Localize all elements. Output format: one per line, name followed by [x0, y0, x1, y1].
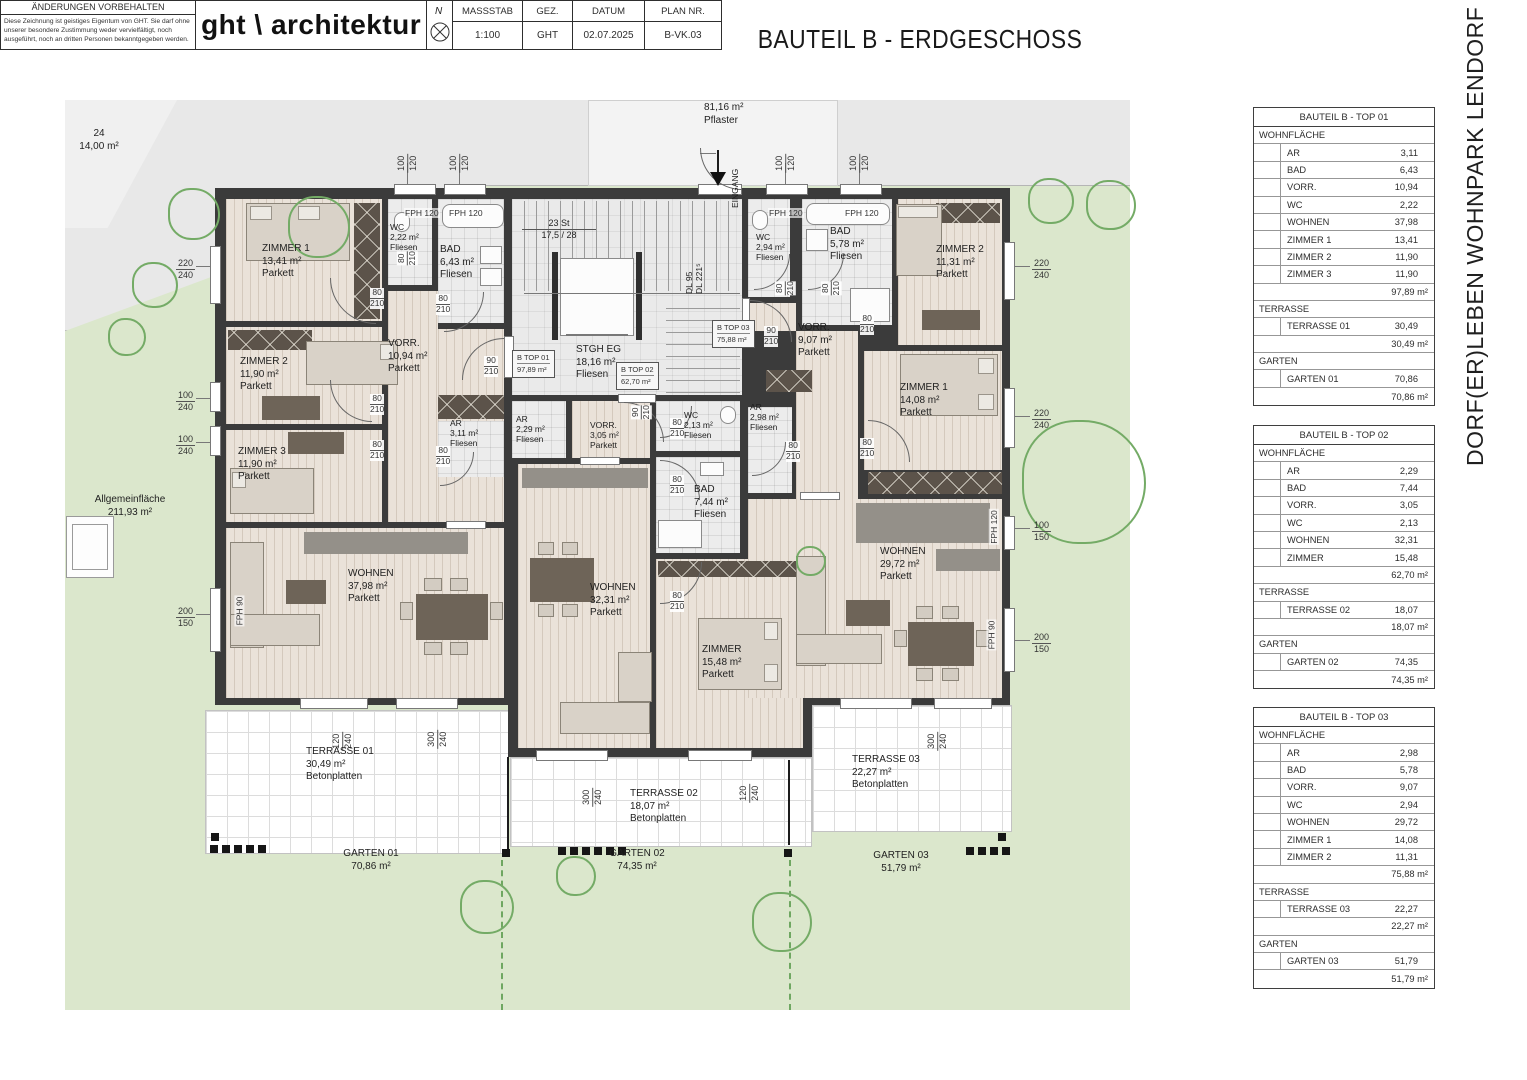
table-row-item: BAD7,44 — [1254, 480, 1434, 497]
table-row-item: VORR.10,94 — [1254, 179, 1434, 196]
site-structure-inner — [72, 524, 108, 570]
outdoor-label-terrasse02: TERRASSE 0218,07 m²Betonplatten — [630, 788, 698, 826]
disclaimer-header: ÄNDERUNGEN VORBEHALTEN — [1, 1, 195, 15]
tree-icon — [460, 880, 514, 934]
door-size-label: 80210 — [786, 441, 800, 462]
room-floor: Fliesen — [390, 242, 419, 252]
door-dl-label: DL 95 DL 221⁵ — [684, 224, 704, 294]
room-floor: Parkett — [900, 407, 948, 420]
fence-post — [1002, 847, 1010, 855]
room-floor: Fliesen — [516, 434, 545, 444]
room-label-t02_ar: AR2,29 m²Fliesen — [516, 414, 545, 445]
north-letter: N — [435, 6, 443, 17]
furniture — [562, 604, 578, 617]
room-area: 2,98 m² — [750, 412, 779, 422]
tree-icon — [132, 262, 178, 308]
fence-post — [990, 847, 998, 855]
room-label-t03_wc: WC2,94 m²Fliesen — [756, 232, 785, 263]
table-row-total: 51,79 m² — [1254, 970, 1434, 987]
table-row-total: 18,07 m² — [1254, 619, 1434, 636]
dimension-label: 220240 — [1032, 258, 1051, 281]
unit-tag-top03: B TOP 03 75,88 m² — [712, 320, 755, 348]
room-name: BAD — [440, 244, 474, 257]
areas-table-top01: BAUTEIL B - TOP 01 WOHNFLÄCHEAR3,11BAD6,… — [1253, 107, 1435, 406]
door-size-label: 80210 — [821, 281, 842, 295]
room-floor: Parkett — [590, 607, 636, 620]
room-floor: Parkett — [238, 471, 286, 484]
table-row-item: TERRASSE 0130,49 — [1254, 318, 1434, 335]
table-title: BAUTEIL B - TOP 02 — [1254, 426, 1434, 445]
dimension-label: 300240 — [426, 730, 449, 749]
room-area: 2,13 m² — [684, 420, 713, 430]
furniture — [636, 252, 642, 340]
window-type-label: FPH 120 — [404, 208, 440, 218]
unit-tag-top01: B TOP 01 97,89 m² — [512, 350, 555, 378]
furniture — [720, 406, 736, 424]
title-block-field-plan-nr-: PLAN NR.B-VK.03 — [645, 1, 721, 49]
room-area: 3,11 m² — [450, 428, 478, 438]
room-area: 14,08 m² — [900, 395, 948, 408]
title-block-field-datum: DATUM02.07.2025 — [573, 1, 645, 49]
room-floor: Fliesen — [750, 422, 779, 432]
room-area: 7,44 m² — [694, 497, 728, 510]
table-row-total: 30,49 m² — [1254, 336, 1434, 353]
table-row-section: WOHNFLÄCHE — [1254, 445, 1434, 462]
table-title: BAUTEIL B - TOP 03 — [1254, 708, 1434, 727]
room-floor: Fliesen — [576, 369, 621, 382]
door-size-label: 80210 — [436, 446, 450, 467]
table-row-total: 70,86 m² — [1254, 388, 1434, 405]
room-name: WC — [756, 232, 785, 242]
outdoor-label-garten01: GARTEN 0170,86 m² — [326, 848, 416, 873]
furniture — [250, 206, 272, 220]
room-floor: Parkett — [240, 381, 288, 394]
room-floor: Parkett — [590, 440, 619, 450]
dimension-label: 100150 — [1032, 520, 1051, 543]
window — [840, 698, 912, 709]
room-floor: Parkett — [880, 571, 926, 584]
dimension-label: 220240 — [1032, 408, 1051, 431]
door-size-label: 80210 — [436, 294, 450, 315]
outdoor-area: 30,49 m² — [306, 759, 374, 772]
furniture — [560, 702, 650, 734]
room-floor: Parkett — [348, 593, 394, 606]
table-row-section: TERRASSE — [1254, 584, 1434, 601]
furniture — [942, 606, 959, 619]
furniture — [752, 210, 768, 230]
tree-icon — [108, 318, 146, 356]
fence-post — [966, 847, 974, 855]
outdoor-area: 74,35 m² — [592, 861, 682, 874]
room-floor: Parkett — [702, 669, 741, 682]
room-label-t02_wc: WC2,13 m²Fliesen — [684, 410, 713, 441]
table-row-item: ZIMMER 211,90 — [1254, 249, 1434, 266]
window — [210, 382, 221, 412]
furniture — [764, 622, 778, 640]
table-row-total: 74,35 m² — [1254, 671, 1434, 688]
door-size-label: 90210 — [484, 356, 498, 377]
title-block-field-gez-: GEZ.GHT — [523, 1, 573, 49]
room-label-t01_zimmer2: ZIMMER 211,90 m²Parkett — [240, 356, 288, 394]
furniture — [894, 630, 907, 647]
fence-post — [998, 833, 1006, 841]
table-row-item: WOHNEN37,98 — [1254, 214, 1434, 231]
table-row-section: WOHNFLÄCHE — [1254, 727, 1434, 744]
room-name: AR — [450, 418, 478, 428]
table-row-item: WOHNEN32,31 — [1254, 532, 1434, 549]
table-row-section: WOHNFLÄCHE — [1254, 127, 1434, 144]
table-row-item: BAD5,78 — [1254, 762, 1434, 779]
entrance-arrow-icon — [710, 172, 726, 186]
table-row-item: ZIMMER 114,08 — [1254, 831, 1434, 848]
furniture — [416, 594, 488, 640]
door-size-label: 80210 — [860, 438, 874, 459]
areas-table-top03: BAUTEIL B - TOP 03 WOHNFLÄCHEAR2,98BAD5,… — [1253, 707, 1435, 989]
room-label-t02_bad: BAD7,44 m²Fliesen — [694, 484, 728, 522]
room-name: ZIMMER — [702, 644, 741, 657]
unit-tag-top02: B TOP 02 62,70 m² — [616, 362, 659, 390]
fence-post — [210, 845, 218, 853]
table-row-total: 97,89 m² — [1254, 284, 1434, 301]
title-block-field-massstab: MASSSTAB1:100 — [453, 1, 523, 49]
furniture — [846, 600, 890, 626]
room-floor: Parkett — [262, 268, 310, 281]
furniture — [552, 252, 558, 340]
window — [580, 457, 620, 465]
room-name: VORR. — [590, 420, 619, 430]
tree-icon — [1028, 178, 1074, 224]
dimension-label: 100120 — [396, 154, 419, 173]
outdoor-name: TERRASSE 01 — [306, 746, 374, 759]
table-row-item: GARTEN 0274,35 — [1254, 654, 1434, 671]
dimension-label: 200150 — [176, 606, 195, 629]
parcel-label: 24 14,00 m² — [62, 128, 136, 153]
door-size-label: 80210 — [370, 440, 384, 461]
furniture — [288, 432, 344, 454]
furniture — [922, 310, 980, 330]
dimension-label: 100120 — [774, 154, 797, 173]
title-block: ÄNDERUNGEN VORBEHALTEN Diese Zeichnung i… — [0, 0, 722, 50]
entrance-label: EINGANG — [730, 146, 740, 208]
furniture — [936, 549, 1000, 571]
door-size-label: 80210 — [670, 591, 684, 612]
dimension-label: 100240 — [176, 390, 195, 413]
room-label-t01_vorr: VORR.10,94 m²Parkett — [388, 338, 427, 376]
table-row-item: VORR.3,05 — [1254, 497, 1434, 514]
window — [840, 184, 882, 195]
room-label-t03_vorr: VORR.9,07 m²Parkett — [798, 322, 832, 360]
furniture — [916, 606, 933, 619]
table-row-item: VORR.9,07 — [1254, 779, 1434, 796]
room-area: 5,78 m² — [830, 239, 864, 252]
window — [934, 698, 992, 709]
fence-post — [502, 849, 510, 857]
room-floor: Fliesen — [684, 430, 713, 440]
window-type-label: FPH 120 — [768, 208, 804, 218]
room-label-t01_wohnen: WOHNEN37,98 m²Parkett — [348, 568, 394, 606]
furniture — [942, 668, 959, 681]
fence-post — [258, 845, 266, 853]
furniture — [538, 542, 554, 555]
room-area: 13,41 m² — [262, 256, 310, 269]
room-name: AR — [750, 402, 779, 412]
room-label-t02_wohnen: WOHNEN32,31 m²Parkett — [590, 582, 636, 620]
room-name: VORR. — [798, 322, 832, 335]
room-name: BAD — [694, 484, 728, 497]
outdoor-area: 18,07 m² — [630, 801, 698, 814]
window-type-label: FPH 120 — [989, 509, 999, 545]
furniture — [908, 622, 974, 666]
table-row-item: AR3,11 — [1254, 144, 1434, 161]
furniture — [530, 558, 594, 602]
furniture — [480, 246, 502, 264]
room-name: ZIMMER 2 — [936, 244, 984, 257]
outdoor-label-terrasse01: TERRASSE 0130,49 m²Betonplatten — [306, 746, 374, 784]
room-floor: Fliesen — [694, 509, 728, 522]
furniture — [304, 532, 468, 554]
room-area: 6,43 m² — [440, 257, 474, 270]
room-floor: Fliesen — [830, 251, 864, 264]
furniture — [450, 642, 468, 655]
outdoor-name: GARTEN 02 — [592, 848, 682, 861]
room-name: BAD — [830, 226, 864, 239]
boundary-line — [788, 760, 790, 845]
room-area: 11,90 m² — [238, 459, 286, 472]
room-floor: Parkett — [798, 347, 832, 360]
room-area: 2,22 m² — [390, 232, 419, 242]
outdoor-floor: Betonplatten — [852, 779, 920, 792]
furniture — [424, 642, 442, 655]
furniture — [480, 268, 502, 286]
door-size-label: 80210 — [370, 394, 384, 415]
door-size-label: 80210 — [775, 281, 796, 295]
tree-icon — [752, 892, 812, 952]
window-type-label: FPH 120 — [844, 208, 880, 218]
room-name: WC — [684, 410, 713, 420]
room-name: AR — [516, 414, 545, 424]
fence-post — [784, 849, 792, 857]
room-floor: Fliesen — [440, 269, 474, 282]
window — [1004, 608, 1015, 672]
table-row-total: 22,27 m² — [1254, 918, 1434, 935]
window — [688, 750, 752, 761]
window — [800, 492, 840, 500]
table-row-total: 62,70 m² — [1254, 567, 1434, 584]
door-size-label: 80210 — [397, 251, 418, 265]
room-name: WC — [390, 222, 419, 232]
floor-plan-sheet: BAUTEIL B - ERDGESCHOSS DORF(ER)LEBEN WO… — [0, 0, 1527, 1080]
stair-note: 23 St 17,5 / 28 — [522, 218, 596, 242]
dimension-label: 100120 — [848, 154, 871, 173]
dimension-label: 220240 — [176, 258, 195, 281]
furniture — [522, 468, 648, 488]
table-row-item: ZIMMER 211,31 — [1254, 849, 1434, 866]
outdoor-area: 51,79 m² — [856, 863, 946, 876]
table-row-section: GARTEN — [1254, 636, 1434, 653]
table-row-item: ZIMMER 113,41 — [1254, 231, 1434, 248]
table-body: WOHNFLÄCHEAR2,29BAD7,44VORR.3,05WC2,13WO… — [1254, 445, 1434, 688]
room-name: WOHNEN — [590, 582, 636, 595]
room-name: WOHNEN — [348, 568, 394, 581]
furniture — [286, 580, 326, 604]
door-size-label: 90210 — [764, 326, 778, 347]
window — [536, 750, 608, 761]
table-row-item: AR2,98 — [1254, 744, 1434, 761]
door-size-label: 80210 — [860, 314, 874, 335]
tree-icon — [168, 188, 220, 240]
room-area: 18,16 m² — [576, 357, 621, 370]
window — [300, 698, 368, 709]
window — [210, 588, 221, 652]
common-area-label: Allgemeinfläche 211,93 m² — [70, 494, 190, 519]
wardrobe — [438, 395, 504, 419]
window — [766, 184, 808, 195]
room-label-t03_wohnen: WOHNEN29,72 m²Parkett — [880, 546, 926, 584]
window-type-label: FPH 120 — [448, 208, 484, 218]
room-name: ZIMMER 2 — [240, 356, 288, 369]
room-area: 10,94 m² — [388, 351, 427, 364]
window-type-label: FPH 90 — [234, 596, 244, 627]
room-floor: Parkett — [388, 363, 427, 376]
floor-parkett — [388, 291, 438, 522]
table-row-item: TERRASSE 0218,07 — [1254, 602, 1434, 619]
room-label-t01_wc: WC2,22 m²Fliesen — [390, 222, 419, 253]
fence-post — [582, 847, 590, 855]
furniture — [916, 668, 933, 681]
room-name: ZIMMER 1 — [900, 382, 948, 395]
table-row-item: GARTEN 0351,79 — [1254, 953, 1434, 970]
fence-post — [246, 845, 254, 853]
window — [210, 426, 221, 456]
room-floor: Fliesen — [756, 252, 785, 262]
furniture — [450, 578, 468, 591]
garden-divider-line — [501, 860, 503, 1010]
areas-table-top02: BAUTEIL B - TOP 02 WOHNFLÄCHEAR2,29BAD7,… — [1253, 425, 1435, 689]
outdoor-floor: Betonplatten — [306, 771, 374, 784]
room-name: ZIMMER 3 — [238, 446, 286, 459]
furniture — [856, 503, 990, 543]
disclaimer-text: Diese Zeichnung ist geistiges Eigentum v… — [1, 15, 195, 49]
table-title: BAUTEIL B - TOP 01 — [1254, 108, 1434, 127]
window — [210, 246, 221, 304]
north-compass-icon: N — [427, 1, 453, 49]
room-label-t01_bad: BAD6,43 m²Fliesen — [440, 244, 474, 282]
furniture — [658, 520, 702, 548]
wardrobe — [868, 472, 1002, 494]
wardrobe — [228, 330, 312, 350]
compass-svg: N — [429, 3, 451, 47]
furniture — [400, 602, 413, 620]
dimension-label: 120240 — [738, 784, 761, 803]
room-label-t03_ar: AR2,98 m²Fliesen — [750, 402, 779, 433]
fence-post — [570, 847, 578, 855]
outdoor-floor: Betonplatten — [630, 813, 698, 826]
room-area: 11,31 m² — [936, 257, 984, 270]
furniture — [796, 634, 882, 664]
table-row-item: WC2,13 — [1254, 515, 1434, 532]
door-size-label: 80210 — [670, 475, 684, 496]
outdoor-name: GARTEN 03 — [856, 850, 946, 863]
furniture — [562, 542, 578, 555]
room-area: 15,48 m² — [702, 657, 741, 670]
room-area: 9,07 m² — [798, 335, 832, 348]
table-body: WOHNFLÄCHEAR2,98BAD5,78VORR.9,07WC2,94WO… — [1254, 727, 1434, 988]
room-name: STGH EG — [576, 344, 621, 357]
room-area: 2,29 m² — [516, 424, 545, 434]
room-name: ZIMMER 1 — [262, 243, 310, 256]
disclaimer-box: ÄNDERUNGEN VORBEHALTEN Diese Zeichnung i… — [1, 1, 196, 49]
table-row-section: GARTEN — [1254, 936, 1434, 953]
table-row-item: TERRASSE 0322,27 — [1254, 901, 1434, 918]
table-row-item: ZIMMER 311,90 — [1254, 266, 1434, 283]
window — [396, 698, 458, 709]
page-title: BAUTEIL B - ERDGESCHOSS — [726, 24, 1113, 55]
outdoor-label-garten03: GARTEN 0351,79 m² — [856, 850, 946, 875]
outdoor-name: TERRASSE 03 — [852, 754, 920, 767]
tree-icon — [1086, 180, 1136, 230]
table-row-item: GARTEN 0170,86 — [1254, 370, 1434, 387]
furniture — [538, 604, 554, 617]
fence-post — [978, 847, 986, 855]
outdoor-label-garten02: GARTEN 0274,35 m² — [592, 848, 682, 873]
room-name: WOHNEN — [880, 546, 926, 559]
fence-post — [222, 845, 230, 853]
room-label-t01_zimmer1: ZIMMER 113,41 m²Parkett — [262, 243, 310, 281]
window — [394, 184, 436, 195]
fence-post — [234, 845, 242, 853]
window — [1004, 516, 1015, 550]
table-row-section: TERRASSE — [1254, 884, 1434, 901]
table-row-item: WOHNEN29,72 — [1254, 814, 1434, 831]
dimension-label: 200150 — [1032, 632, 1051, 655]
room-area: 32,31 m² — [590, 595, 636, 608]
dimension-label: 300240 — [581, 788, 604, 807]
dimension-label: 100120 — [448, 154, 471, 173]
outdoor-label-terrasse03: TERRASSE 0322,27 m²Betonplatten — [852, 754, 920, 792]
table-row-item: AR2,29 — [1254, 462, 1434, 479]
tree-icon — [796, 546, 826, 576]
room-area: 3,05 m² — [590, 430, 619, 440]
tree-icon — [556, 856, 596, 896]
table-row-item: BAD6,43 — [1254, 162, 1434, 179]
room-label-t02_zimmer: ZIMMER15,48 m²Parkett — [702, 644, 741, 682]
room-area: 2,94 m² — [756, 242, 785, 252]
furniture — [978, 358, 994, 374]
room-area: 29,72 m² — [880, 559, 926, 572]
furniture — [490, 602, 503, 620]
furniture — [262, 396, 320, 420]
room-label-t02_vorr: VORR.3,05 m²Parkett — [590, 420, 619, 451]
door-size-label: 80210 — [370, 288, 384, 309]
furniture — [424, 578, 442, 591]
leader-line — [566, 334, 628, 336]
furniture — [978, 394, 994, 410]
outdoor-name: GARTEN 01 — [326, 848, 416, 861]
door-size-label: 90210 — [631, 405, 652, 419]
door-size-label: 80210 — [670, 418, 684, 439]
outdoor-area: 22,27 m² — [852, 767, 920, 780]
window-type-label: FPH 90 — [986, 620, 996, 651]
room-label-t01_zimmer3: ZIMMER 311,90 m²Parkett — [238, 446, 286, 484]
boundary-line — [507, 757, 509, 849]
leader-line — [524, 293, 740, 294]
furniture — [618, 652, 652, 702]
pflaster-label: 81,16 m² Pflaster — [704, 102, 743, 127]
table-row-section: GARTEN — [1254, 353, 1434, 370]
room-label-t01_ar: AR3,11 m²Fliesen — [450, 418, 478, 449]
room-area: 11,90 m² — [240, 369, 288, 382]
title-block-fields: MASSSTAB1:100GEZ.GHTDATUM02.07.2025PLAN … — [453, 1, 721, 49]
